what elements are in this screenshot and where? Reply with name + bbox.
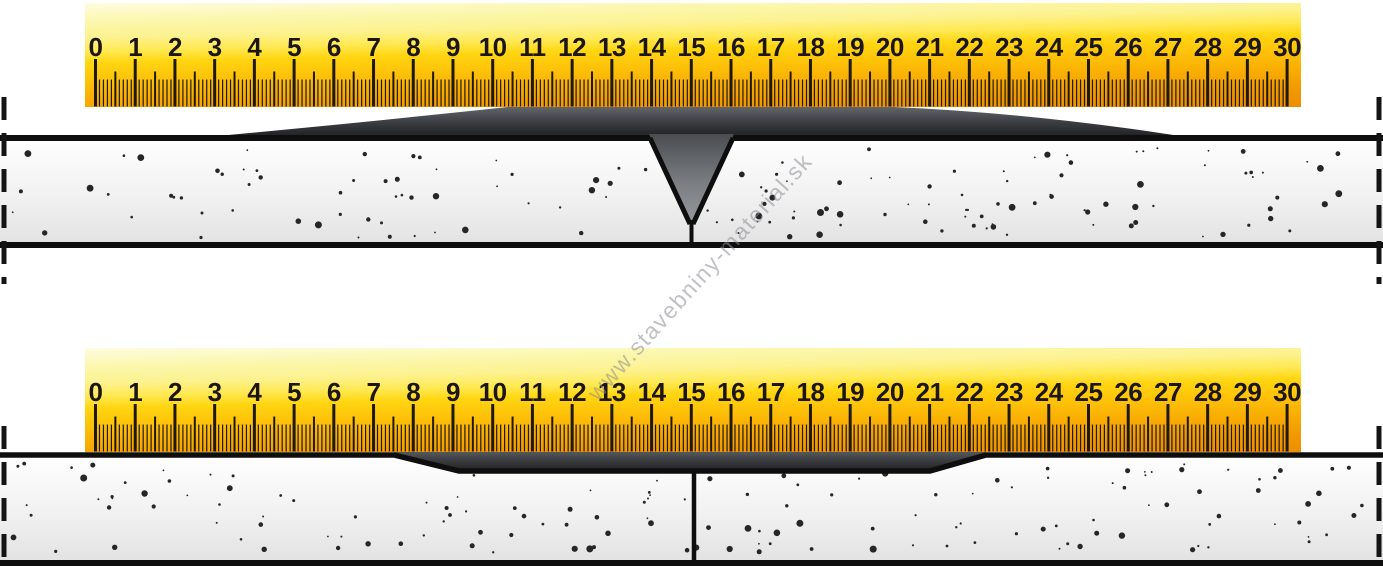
aggregate-speckle	[955, 526, 957, 528]
aggregate-speckle	[716, 221, 718, 223]
ruler-number: 0	[89, 379, 103, 405]
aggregate-speckle	[1217, 514, 1222, 519]
aggregate-speckle	[259, 175, 263, 179]
aggregate-speckle	[470, 543, 475, 548]
aggregate-speckle	[1249, 171, 1253, 175]
compound-layer	[393, 449, 987, 470]
aggregate-speckle	[1262, 172, 1264, 174]
aggregate-speckle	[991, 224, 997, 230]
aggregate-speckle	[1256, 488, 1261, 493]
aggregate-speckle	[1009, 204, 1016, 211]
aggregate-speckle	[246, 149, 248, 151]
aggregate-speckle	[617, 167, 620, 170]
aggregate-speckle	[1297, 521, 1301, 525]
aggregate-speckle	[605, 531, 611, 537]
aggregate-speckle	[953, 170, 956, 173]
ruler-number: 24	[1035, 34, 1063, 60]
aggregate-speckle	[965, 209, 967, 211]
ruler-number: 18	[796, 379, 824, 405]
aggregate-speckle	[462, 227, 469, 234]
aggregate-speckle	[1316, 491, 1322, 497]
aggregate-speckle	[647, 498, 649, 500]
illustration-canvas: 0123456789101112131415161718192021222324…	[0, 0, 1383, 566]
aggregate-speckle	[124, 481, 127, 484]
aggregate-speckle	[465, 510, 467, 512]
aggregate-speckle	[510, 173, 513, 176]
aggregate-speckle	[1325, 533, 1328, 536]
aggregate-speckle	[22, 462, 26, 466]
aggregate-speckle	[473, 474, 476, 477]
aggregate-speckle	[643, 501, 646, 504]
aggregate-speckle	[1360, 504, 1364, 508]
aggregate-speckle	[1077, 544, 1082, 549]
aggregate-speckle	[292, 499, 295, 502]
aggregate-speckle	[870, 177, 872, 179]
ruler-number: 21	[916, 34, 944, 60]
aggregate-speckle	[961, 194, 964, 197]
aggregate-speckle	[1006, 234, 1008, 236]
aggregate-speckle	[1034, 157, 1036, 159]
aggregate-speckle	[928, 203, 930, 205]
ruler-number: 22	[955, 34, 983, 60]
ruler-number: 15	[677, 379, 705, 405]
aggregate-speckle	[358, 237, 360, 239]
aggregate-speckle	[418, 156, 422, 160]
aggregate-speckle	[1085, 209, 1090, 214]
aggregate-speckle	[934, 493, 937, 496]
aggregate-speckle	[1252, 176, 1254, 178]
aggregate-speckle	[568, 507, 573, 512]
aggregate-speckle	[870, 546, 877, 553]
aggregate-speckle	[25, 150, 32, 157]
aggregate-speckle	[70, 466, 73, 469]
ruler-number: 14	[638, 34, 666, 60]
ruler-number: 18	[796, 34, 824, 60]
aggregate-speckle	[912, 544, 914, 546]
aggregate-speckle	[871, 527, 875, 531]
aggregate-speckle	[366, 217, 370, 221]
aggregate-speckle	[1273, 476, 1276, 479]
ruler-number: 9	[446, 379, 460, 405]
aggregate-speckle	[793, 211, 795, 213]
aggregate-speckle	[907, 204, 909, 206]
ruler-number: 2	[168, 34, 182, 60]
aggregate-speckle	[528, 202, 530, 204]
aggregate-speckle	[590, 490, 592, 492]
aggregate-speckle	[111, 495, 114, 498]
aggregate-speckle	[816, 231, 823, 238]
aggregate-speckle	[781, 473, 786, 478]
aggregate-speckle	[215, 169, 220, 174]
aggregate-speckle	[210, 474, 212, 476]
aggregate-speckle	[363, 152, 367, 156]
aggregate-speckle	[768, 221, 771, 224]
aggregate-speckle	[595, 515, 600, 520]
aggregate-speckle	[1308, 536, 1310, 538]
aggregate-speckle	[1183, 463, 1185, 465]
aggregate-speckle	[352, 179, 355, 182]
aggregate-speckle	[1247, 224, 1250, 227]
aggregate-speckle	[1049, 194, 1054, 199]
aggregate-speckle	[414, 235, 416, 237]
aggregate-speckle	[1335, 190, 1342, 197]
aggregate-speckle	[87, 185, 94, 192]
aggregate-speckle	[727, 546, 733, 552]
aggregate-speckle	[769, 542, 772, 545]
aggregate-speckle	[1179, 467, 1184, 472]
aggregate-speckle	[1336, 151, 1341, 156]
aggregate-speckle	[216, 522, 218, 524]
ruler-number: 7	[367, 379, 381, 405]
ruler-number: 12	[558, 34, 586, 60]
aggregate-speckle	[163, 470, 165, 472]
aggregate-speckle	[792, 216, 795, 219]
aggregate-speckle	[1047, 477, 1049, 479]
ruler-number: 26	[1114, 379, 1142, 405]
aggregate-speckle	[259, 522, 264, 527]
aggregate-speckle	[54, 550, 57, 553]
aggregate-speckle	[707, 476, 712, 481]
aggregate-speckle	[1322, 201, 1328, 207]
aggregate-speckle	[496, 185, 498, 187]
aggregate-speckle	[509, 533, 513, 537]
aggregate-speckle	[1258, 478, 1261, 481]
aggregate-speckle	[960, 522, 962, 524]
aggregate-speckle	[739, 172, 745, 178]
aggregate-speckle	[1347, 466, 1351, 470]
ruler-number: 29	[1233, 379, 1261, 405]
aggregate-speckle	[1202, 236, 1204, 238]
aggregate-speckle	[152, 504, 156, 508]
aggregate-speckle	[232, 474, 235, 477]
ruler-number: 22	[955, 379, 983, 405]
ruler-number: 11	[519, 34, 546, 60]
aggregate-speckle	[172, 196, 175, 199]
ruler-number: 10	[479, 379, 507, 405]
aggregate-speckle	[123, 154, 126, 157]
ruler-number: 11	[519, 379, 546, 405]
ruler-number: 23	[995, 34, 1023, 60]
aggregate-speckle	[256, 169, 259, 172]
ruler-number: 6	[327, 379, 341, 405]
aggregate-speckle	[648, 491, 651, 494]
aggregate-speckle	[1351, 513, 1356, 518]
ruler-number: 27	[1154, 379, 1182, 405]
ruler-bottom: 0123456789101112131415161718192021222324…	[85, 348, 1301, 452]
aggregate-speckle	[1144, 471, 1146, 473]
aggregate-speckle	[986, 227, 988, 229]
aggregate-speckle	[996, 202, 1000, 206]
ruler-number: 12	[558, 379, 586, 405]
aggregate-speckle	[1015, 532, 1018, 535]
aggregate-speckle	[1268, 216, 1273, 221]
aggregate-speckle	[684, 498, 686, 500]
slab-bottom-border	[0, 242, 1383, 248]
aggregate-speckle	[785, 504, 788, 507]
aggregate-speckle	[262, 516, 264, 518]
ruler-number: 30	[1273, 379, 1301, 405]
ruler-top: 0123456789101112131415161718192021222324…	[85, 3, 1301, 107]
aggregate-speckle	[1305, 501, 1311, 507]
aggregate-speckle	[522, 514, 527, 519]
ruler-number: 8	[406, 379, 420, 405]
ruler-number: 4	[247, 34, 261, 60]
ruler-number: 17	[757, 34, 785, 60]
aggregate-speckle	[837, 211, 844, 218]
aggregate-speckle	[593, 177, 599, 183]
ruler-number: 25	[1075, 34, 1103, 60]
aggregate-speckle	[1244, 172, 1247, 175]
aggregate-speckle	[824, 206, 829, 211]
aggregate-speckle	[796, 520, 803, 527]
aggregate-speckle	[1197, 545, 1199, 547]
ruler-number: 19	[836, 34, 864, 60]
aggregate-speckle	[1156, 147, 1158, 149]
ruler-number: 9	[446, 34, 460, 60]
aggregate-speckle	[927, 184, 931, 188]
aggregate-speckle	[787, 234, 792, 239]
aggregate-speckle	[1006, 180, 1008, 182]
ruler-number: 28	[1194, 379, 1222, 405]
ruler-number: 16	[717, 34, 745, 60]
ruler-number: 7	[367, 34, 381, 60]
aggregate-speckle	[130, 216, 133, 219]
aggregate-speckle	[1119, 532, 1125, 538]
aggregate-speckle	[448, 513, 452, 517]
aggregate-speckle	[1164, 502, 1169, 507]
aggregate-speckle	[706, 525, 711, 530]
aggregate-speckle	[1033, 201, 1037, 205]
aggregate-speckle	[433, 193, 439, 199]
aggregate-speckle	[336, 546, 340, 550]
aggregate-speckle	[745, 525, 752, 532]
aggregate-speckle	[1046, 467, 1050, 471]
aggregate-speckle	[1059, 173, 1063, 177]
aggregate-speckle	[995, 478, 1000, 483]
aggregate-speckle	[1066, 154, 1068, 156]
aggregate-speckle	[940, 229, 943, 232]
aggregate-speckle	[1055, 525, 1058, 528]
aggregate-speckle	[923, 219, 928, 224]
aggregate-speckle	[774, 530, 781, 537]
aggregate-speckle	[758, 543, 760, 545]
ruler-number: 6	[327, 34, 341, 60]
aggregate-speckle	[685, 548, 690, 553]
aggregate-speckle	[1132, 204, 1138, 210]
aggregate-speckle	[80, 475, 87, 482]
ruler-number: 20	[876, 379, 904, 405]
aggregate-speckle	[42, 230, 47, 235]
aggregate-speckle	[395, 195, 398, 198]
aggregate-speckle	[1317, 165, 1324, 172]
aggregate-speckle	[354, 515, 357, 518]
aggregate-speckle	[411, 154, 415, 158]
aggregate-speckle	[1066, 542, 1069, 545]
ruler-number: 1	[128, 34, 142, 60]
aggregate-speckle	[1204, 164, 1206, 166]
aggregate-speckle	[401, 194, 404, 197]
aggregate-speckle	[1241, 149, 1246, 154]
aggregate-speckle	[1112, 482, 1114, 484]
ruler-number: 15	[677, 34, 705, 60]
aggregate-speckle	[218, 503, 221, 506]
aggregate-speckle	[445, 506, 449, 510]
ruler-number: 23	[995, 379, 1023, 405]
aggregate-speckle	[889, 177, 891, 179]
aggregate-speckle	[1137, 181, 1144, 188]
aggregate-speckle	[1227, 469, 1229, 471]
aggregate-speckle	[1152, 205, 1154, 207]
ruler-number: 21	[916, 379, 944, 405]
aggregate-speckle	[649, 494, 651, 496]
aggregate-speckle	[1133, 220, 1138, 225]
aggregate-speckle	[137, 154, 144, 161]
aggregate-speckle	[1041, 527, 1046, 532]
aggregate-speckle	[1208, 150, 1210, 152]
ruler-number: 17	[757, 379, 785, 405]
aggregate-speckle	[279, 494, 282, 497]
aggregate-speckle	[883, 213, 886, 216]
aggregate-speckle	[315, 221, 322, 228]
ruler-number: 27	[1154, 34, 1182, 60]
aggregate-speckle	[327, 536, 329, 538]
aggregate-speckle	[231, 209, 234, 212]
aggregate-speckle	[1011, 486, 1013, 488]
ruler-number: 28	[1194, 34, 1222, 60]
ruler-number: 24	[1035, 379, 1063, 405]
aggregate-speckle	[974, 541, 977, 544]
ruler-number: 8	[406, 34, 420, 60]
aggregate-speckle	[1306, 161, 1308, 163]
aggregate-speckle	[168, 479, 172, 483]
aggregate-speckle	[262, 547, 267, 552]
aggregate-speckle	[495, 160, 497, 162]
aggregate-speckle	[384, 179, 388, 183]
aggregate-speckle	[340, 536, 342, 538]
aggregate-speckle	[107, 505, 111, 509]
ruler-number: 19	[836, 379, 864, 405]
aggregate-speckle	[1103, 202, 1108, 207]
aggregate-speckle	[972, 224, 976, 228]
aggregate-speckle	[90, 463, 95, 468]
aggregate-speckle	[1207, 546, 1209, 548]
aggregate-speckle	[1044, 152, 1050, 158]
aggregate-speckle	[1220, 232, 1225, 237]
ruler-number: 3	[208, 34, 222, 60]
aggregate-speckle	[746, 493, 749, 496]
aggregate-speckle	[858, 478, 860, 480]
ruler-number: 25	[1075, 379, 1103, 405]
aggregate-speckle	[26, 504, 28, 506]
ruler-number: 10	[479, 34, 507, 60]
aggregate-speckle	[423, 534, 425, 536]
aggregate-speckle	[399, 541, 404, 546]
aggregate-speckle	[201, 212, 204, 215]
aggregate-speckle	[1148, 504, 1150, 506]
aggregate-speckle	[1190, 547, 1195, 552]
aggregate-speckle	[1197, 489, 1202, 494]
aggregate-speckle	[1208, 523, 1211, 526]
aggregate-speckle	[30, 514, 33, 517]
aggregate-speckle	[810, 547, 814, 551]
aggregate-speckle	[434, 232, 436, 234]
ruler-number: 16	[717, 379, 745, 405]
aggregate-speckle	[946, 545, 949, 548]
aggregate-speckle	[1069, 160, 1074, 165]
ruler-number: 0	[89, 34, 103, 60]
aggregate-speckle	[706, 209, 708, 211]
aggregate-speckle	[592, 545, 596, 549]
aggregate-speckle	[758, 530, 761, 533]
slab-top-border-right	[730, 135, 1383, 141]
aggregate-speckle	[542, 523, 545, 526]
ruler-number: 30	[1273, 34, 1301, 60]
aggregate-speckle	[647, 517, 649, 519]
aggregate-speckle	[644, 168, 647, 171]
aggregate-speckle	[107, 193, 110, 196]
aggregate-speckle	[1308, 540, 1311, 543]
aggregate-speckle	[380, 221, 383, 224]
aggregate-speckle	[915, 514, 917, 516]
aggregate-speckle	[436, 168, 438, 170]
aggregate-speckle	[817, 209, 824, 216]
aggregate-speckle	[409, 195, 413, 199]
aggregate-speckle	[97, 498, 99, 500]
aggregate-speckle	[492, 551, 494, 553]
aggregate-speckle	[1274, 523, 1276, 525]
aggregate-speckle	[248, 183, 251, 186]
aggregate-speckle	[457, 496, 459, 498]
aggregate-speckle	[1084, 209, 1086, 211]
slab-bottom-border	[0, 560, 1383, 566]
aggregate-speckle	[1129, 223, 1134, 228]
aggregate-speckle	[579, 231, 583, 235]
aggregate-speckle	[1330, 467, 1334, 471]
aggregate-speckle	[443, 520, 445, 522]
aggregate-speckle	[572, 546, 578, 552]
aggregate-speckle	[757, 549, 762, 554]
aggregate-speckle	[1142, 150, 1144, 152]
aggregate-speckle	[1092, 519, 1095, 522]
aggregate-speckle	[388, 235, 392, 239]
aggregate-speckle	[19, 189, 23, 193]
aggregate-speckle	[426, 502, 428, 504]
ruler-number: 26	[1114, 34, 1142, 60]
aggregate-speckle	[199, 236, 202, 239]
aggregate-speckle	[1094, 531, 1099, 536]
ruler-number: 4	[247, 379, 261, 405]
aggregate-speckle	[478, 530, 483, 535]
aggregate-speckle	[243, 169, 245, 171]
aggregate-speckle	[339, 213, 342, 216]
aggregate-speckle	[648, 520, 654, 526]
aggregate-speckle	[1288, 229, 1291, 232]
aggregate-speckle	[1268, 206, 1273, 211]
aggregate-speckle	[605, 196, 607, 198]
aggregate-speckle	[513, 506, 517, 510]
aggregate-speckle	[1003, 170, 1005, 172]
aggregate-speckle	[240, 538, 243, 541]
aggregate-speckle	[867, 147, 871, 151]
aggregate-speckle	[221, 173, 224, 176]
aggregate-speckle	[565, 523, 569, 527]
aggregate-speckle	[1136, 151, 1138, 153]
aggregate-speckle	[339, 191, 343, 195]
aggregate-speckle	[837, 180, 842, 185]
aggregate-speckle	[796, 483, 799, 486]
slab-top-border-left	[0, 135, 652, 141]
aggregate-speckle	[112, 545, 117, 550]
